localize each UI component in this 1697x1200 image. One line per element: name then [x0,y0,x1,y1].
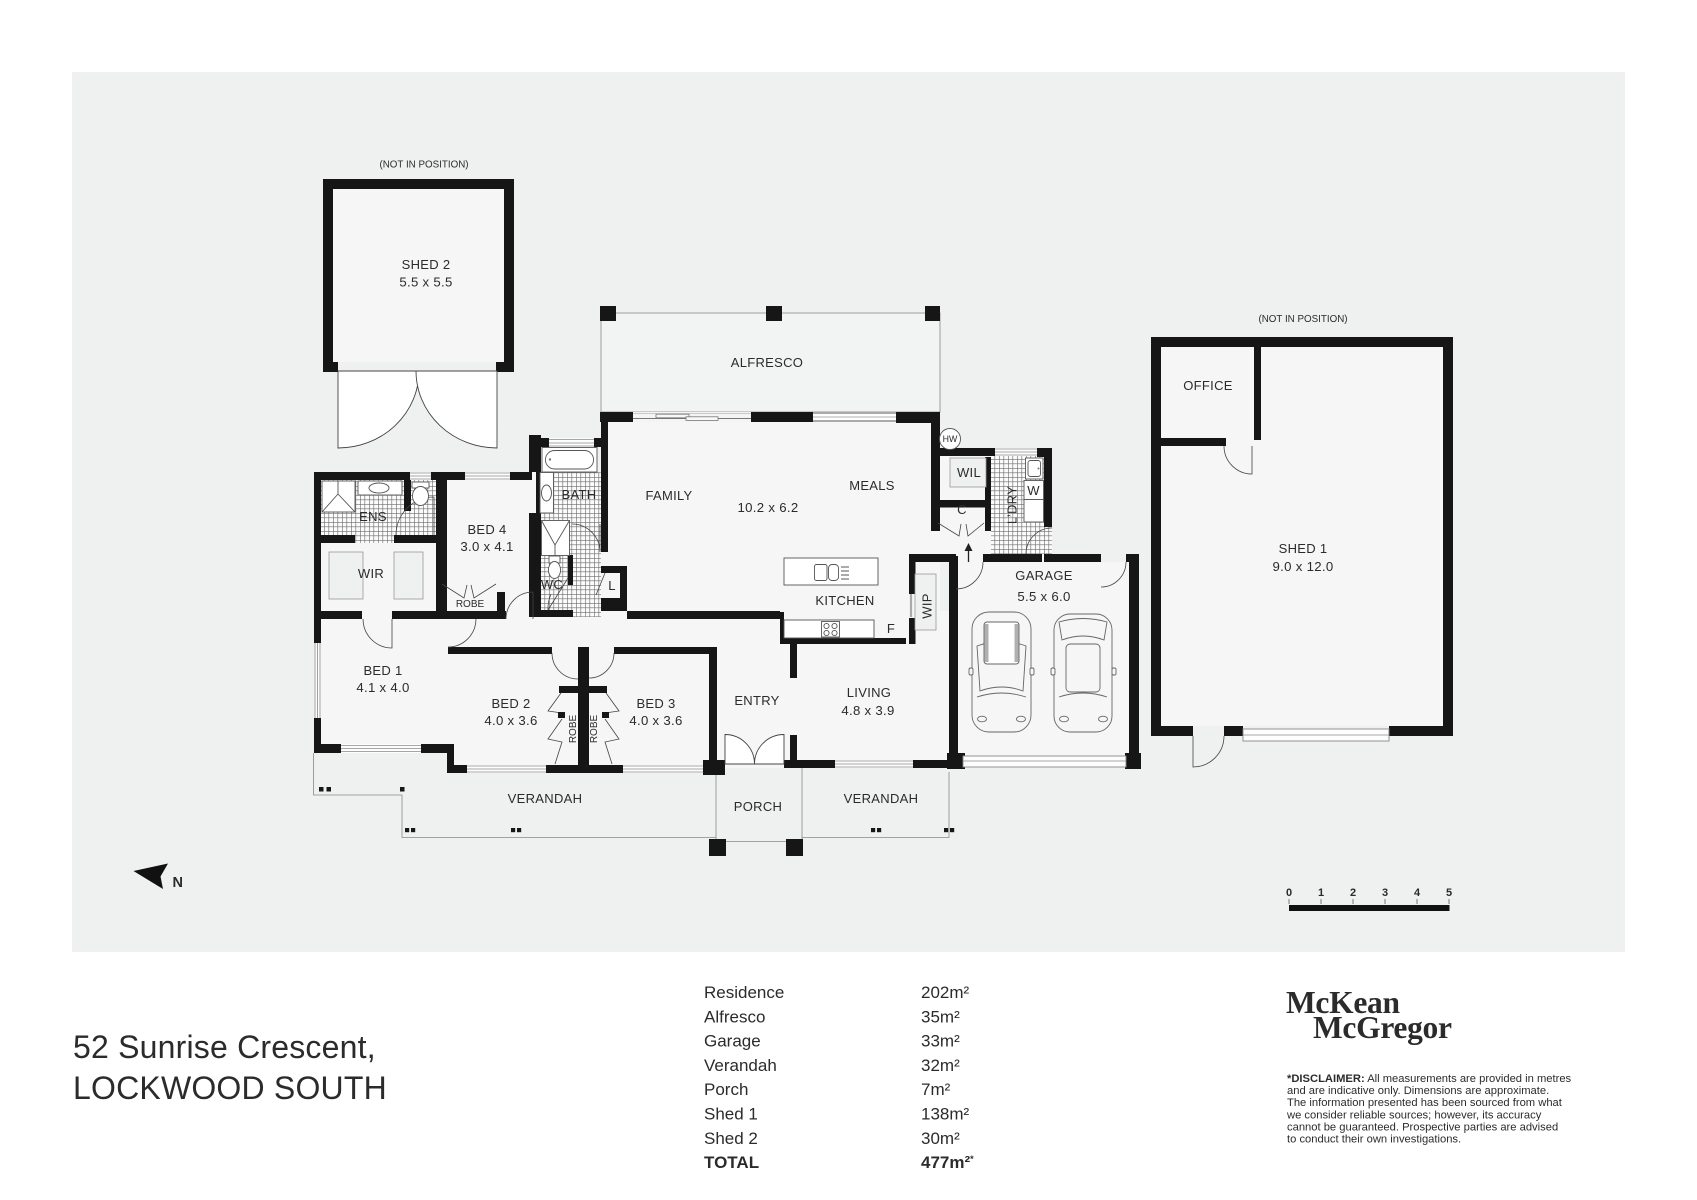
svg-text:5: 5 [1446,887,1452,899]
svg-text:to conduct their own investiga: to conduct their own investigations. [1287,1134,1461,1146]
svg-text:OFFICE: OFFICE [1183,378,1232,393]
svg-text:BED 3: BED 3 [636,696,675,711]
svg-text:SHED 1: SHED 1 [1279,541,1328,556]
svg-text:BED 4: BED 4 [467,522,506,537]
svg-text:4.0 x 3.6: 4.0 x 3.6 [484,713,537,728]
svg-text:Residence: Residence [704,983,784,1002]
svg-text:LOCKWOOD SOUTH: LOCKWOOD SOUTH [73,1070,387,1106]
svg-text:3: 3 [1382,887,1388,899]
svg-text:5.5 x 6.0: 5.5 x 6.0 [1017,589,1070,604]
svg-text:TOTAL: TOTAL [704,1153,759,1172]
svg-text:477m²*: 477m²* [921,1153,974,1172]
svg-text:*DISCLAIMER: All measurements: *DISCLAIMER: All measurements are provid… [1287,1073,1572,1085]
svg-text:N: N [173,875,183,891]
svg-text:VERANDAH: VERANDAH [508,791,583,806]
svg-text:ENS: ENS [359,509,387,524]
svg-text:(NOT IN POSITION): (NOT IN POSITION) [1258,314,1347,325]
svg-text:3.0 x 4.1: 3.0 x 4.1 [460,539,513,554]
svg-text:PORCH: PORCH [734,799,782,814]
svg-text:F: F [887,621,895,636]
svg-text:52 Sunrise Crescent,: 52 Sunrise Crescent, [73,1029,376,1065]
svg-text:L: L [608,578,616,593]
svg-text:Shed 1: Shed 1 [704,1105,758,1124]
svg-text:4.1 x 4.0: 4.1 x 4.0 [356,680,409,695]
svg-text:Verandah: Verandah [704,1056,777,1075]
svg-text:1: 1 [1318,887,1324,899]
svg-text:LIVING: LIVING [847,685,891,700]
svg-text:FAMILY: FAMILY [645,488,692,503]
svg-text:L’DRY: L’DRY [1004,486,1019,524]
svg-text:ROBE: ROBE [568,715,579,744]
svg-text:BATH: BATH [562,487,597,502]
svg-text:ENTRY: ENTRY [734,693,779,708]
svg-text:ROBE: ROBE [456,599,485,610]
svg-text:we consider reliable sources;: we consider reliable sources; however, i… [1286,1109,1542,1121]
svg-text:4.8 x 3.9: 4.8 x 3.9 [841,703,894,718]
svg-text:30m²: 30m² [921,1129,960,1148]
svg-text:KITCHEN: KITCHEN [815,593,874,608]
svg-text:GARAGE: GARAGE [1015,568,1072,583]
svg-text:Garage: Garage [704,1032,761,1051]
svg-text:VERANDAH: VERANDAH [844,791,919,806]
svg-text:WC: WC [541,577,563,592]
svg-text:Alfresco: Alfresco [704,1007,765,1026]
svg-text:ROBE: ROBE [589,715,600,744]
svg-text:WIR: WIR [358,566,384,581]
svg-text:7m²: 7m² [921,1080,951,1099]
svg-text:WIL: WIL [957,465,981,480]
svg-text:McGregor: McGregor [1313,1010,1452,1045]
svg-text:32m²: 32m² [921,1056,960,1075]
svg-text:Shed 2: Shed 2 [704,1129,758,1148]
svg-text:33m²: 33m² [921,1032,960,1051]
svg-text:10.2 x 6.2: 10.2 x 6.2 [738,500,799,515]
svg-text:Porch: Porch [704,1080,748,1099]
svg-text:C: C [957,502,967,517]
svg-text:202m²: 202m² [921,983,970,1002]
svg-text:0: 0 [1286,887,1292,899]
svg-text:9.0 x 12.0: 9.0 x 12.0 [1273,559,1334,574]
svg-text:4.0 x 3.6: 4.0 x 3.6 [629,713,682,728]
svg-text:cannot be guaranteed. Prospect: cannot be guaranteed. Prospective partie… [1287,1121,1558,1133]
svg-text:W: W [1027,483,1040,498]
svg-text:BED 1: BED 1 [363,663,402,678]
svg-text:4: 4 [1414,887,1421,899]
svg-text:138m²: 138m² [921,1105,970,1124]
svg-text:MEALS: MEALS [849,478,895,493]
svg-text:HW: HW [943,434,958,444]
svg-text:(NOT IN POSITION): (NOT IN POSITION) [379,160,468,171]
svg-text:SHED 2: SHED 2 [402,257,451,272]
svg-text:35m²: 35m² [921,1007,960,1026]
svg-text:and are indicative only. Dimen: and are indicative only. Dimensions are … [1287,1085,1549,1097]
svg-text:WIP: WIP [919,593,934,618]
svg-text:ALFRESCO: ALFRESCO [731,355,803,370]
svg-text:2: 2 [1350,887,1356,899]
svg-text:5.5 x 5.5: 5.5 x 5.5 [399,275,452,290]
svg-text:BED 2: BED 2 [491,696,530,711]
svg-text:The information presented has: The information presented has been sourc… [1287,1097,1563,1109]
